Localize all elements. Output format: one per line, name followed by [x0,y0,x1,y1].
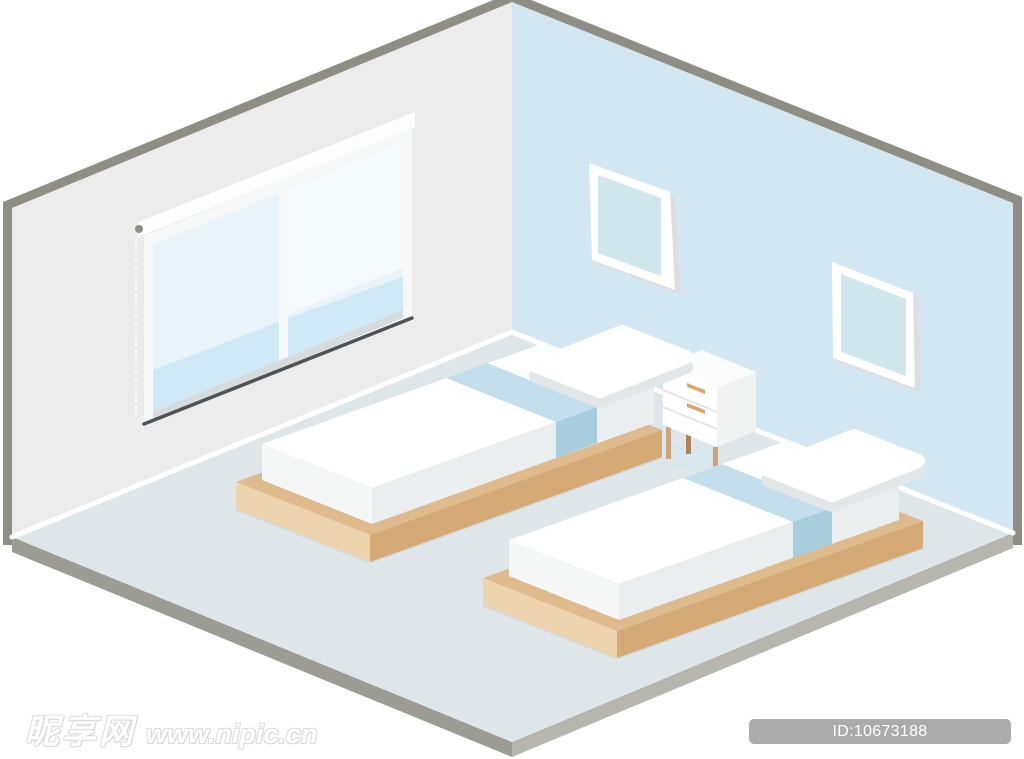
stock-image-page: 昵享网www.nipic.cn ID:10673188 NO:202508111… [0,0,1024,759]
watermark-site-url: www.nipic.cn [146,719,318,749]
blind-knob [135,225,143,233]
id-badge-text: ID:10673188 NO:20250811133333636105 [775,723,986,759]
watermark-site-name: 昵享网 [25,713,136,751]
nightstand-leg-back [686,433,691,454]
watermark: 昵享网www.nipic.cn [25,704,318,753]
isometric-bedroom-illustration [0,0,1024,759]
nightstand-leg-left [666,426,671,459]
id-badge: ID:10673188 NO:20250811133333636105 [749,719,1011,744]
nightstand-leg-front [713,447,718,467]
